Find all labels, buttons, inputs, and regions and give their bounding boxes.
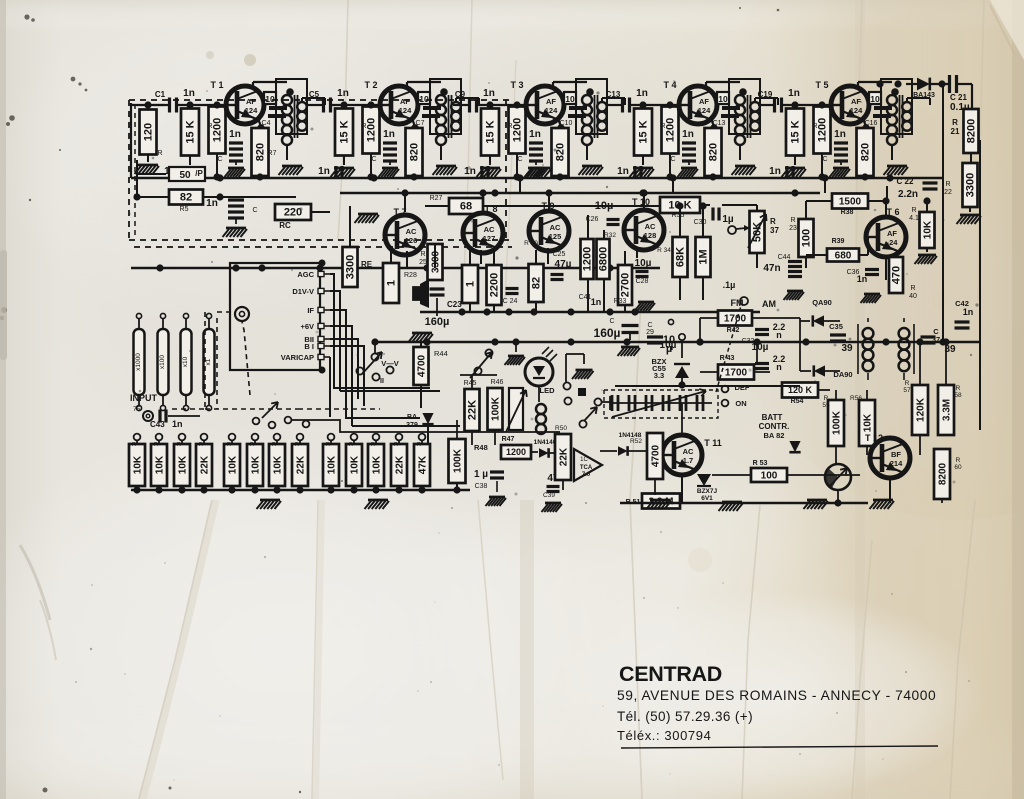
svg-text:57: 57 [903,387,911,394]
svg-text:1700: 1700 [724,313,747,324]
svg-text:T 2: T 2 [364,80,377,90]
svg-text:39: 39 [841,343,853,354]
svg-text:47µ: 47µ [555,259,572,270]
svg-text:C: C [822,156,827,163]
svg-text:R: R [911,207,916,214]
svg-text:120: 120 [143,123,155,141]
svg-text:15 K: 15 K [185,120,197,143]
svg-text:R27: R27 [430,195,443,202]
svg-text:1n: 1n [834,129,846,140]
svg-text:.1µ: .1µ [723,280,736,290]
svg-text:15 K: 15 K [485,120,497,143]
svg-text:124: 124 [245,106,258,115]
svg-text:4.1: 4.1 [909,215,919,222]
svg-text:15 K: 15 K [790,120,802,143]
svg-text:59, AVENUE DES ROMAINS - ANNEC: 59, AVENUE DES ROMAINS - ANNECY - 74000 [617,688,936,703]
svg-text:22: 22 [944,189,952,196]
svg-text:22K: 22K [394,455,405,474]
svg-text:3300: 3300 [965,173,977,197]
svg-text:Tél. (50) 57.29.36 (+): Tél. (50) 57.29.36 (+) [617,709,753,724]
svg-text:3300: 3300 [345,255,357,279]
svg-text:T 1: T 1 [210,80,223,90]
svg-text:C: C [252,207,257,214]
svg-text:C39: C39 [543,492,555,499]
svg-text:68K: 68K [675,247,687,267]
svg-text:10: 10 [718,94,728,104]
svg-text:37: 37 [770,226,779,235]
svg-text:C: C [647,322,652,329]
svg-text:4700: 4700 [416,354,427,377]
svg-text:R: R [507,123,512,130]
svg-text:15 K: 15 K [638,120,650,143]
svg-text:82: 82 [531,277,543,289]
svg-text:R: R [361,123,366,130]
svg-text:160µ: 160µ [594,326,621,340]
svg-text:CONTR.: CONTR. [759,422,790,431]
svg-text:100: 100 [761,470,778,481]
svg-text:R: R [905,380,910,387]
svg-text:10K: 10K [371,455,382,474]
svg-text:124: 124 [698,106,711,115]
svg-text:C35: C35 [829,322,843,331]
svg-text:25: 25 [419,259,427,266]
svg-text:R: R [824,395,829,402]
svg-text:160µ: 160µ [425,316,450,328]
svg-text:x10: x10 [182,356,189,367]
svg-text:C38: C38 [475,483,488,490]
svg-text:C7: C7 [416,120,425,127]
svg-text:1: 1 [465,281,477,287]
svg-text:22K: 22K [199,455,210,474]
svg-text:R5: R5 [180,206,189,213]
svg-text:58: 58 [954,392,962,399]
svg-text:50: 50 [179,170,191,181]
svg-text:10µ: 10µ [752,342,769,353]
svg-text:C25: C25 [553,251,566,258]
svg-text:820: 820 [255,143,267,161]
svg-text:AC: AC [484,225,495,234]
svg-text:1: 1 [386,280,398,286]
svg-text:22K: 22K [467,400,479,420]
svg-text:C13: C13 [713,120,726,127]
svg-text:680: 680 [835,250,852,261]
svg-text:BA 82: BA 82 [764,431,785,440]
svg-text:QA90: QA90 [812,298,832,307]
svg-text:10µ: 10µ [635,258,652,269]
svg-text:IF: IF [307,306,314,315]
svg-text:R: R [326,442,330,448]
svg-text:T 3: T 3 [510,80,523,90]
svg-text:1200: 1200 [582,247,594,271]
svg-text:3.3M: 3.3M [941,399,952,421]
svg-text:n: n [776,330,782,340]
svg-text:1700: 1700 [725,367,748,378]
svg-text:1n: 1n [636,88,648,99]
svg-text:-24: -24 [887,238,899,247]
svg-text:820: 820 [555,143,567,161]
svg-text:10K: 10K [250,455,261,474]
svg-text:60: 60 [954,464,962,471]
svg-text:C5: C5 [309,90,320,99]
svg-text:DEF: DEF [735,383,750,392]
svg-text:C: C [371,156,376,163]
svg-text:379: 379 [406,422,418,429]
svg-text:1n: 1n [483,88,495,99]
svg-text:29: 29 [646,329,654,336]
svg-text:R: R [945,181,950,188]
svg-text:10K: 10K [272,455,283,474]
svg-text:23: 23 [789,225,797,232]
svg-text:1n: 1n [591,297,602,307]
svg-text:1 µ: 1 µ [474,469,488,480]
svg-text:22K: 22K [558,447,569,466]
svg-text:AF: AF [246,97,256,106]
svg-text:RC: RC [279,221,291,230]
svg-text:1M: 1M [698,249,710,264]
svg-text:R: R [790,217,795,224]
svg-text:10K: 10K [154,455,165,474]
svg-text:55: 55 [822,402,830,409]
svg-text:B I: B I [304,342,314,351]
svg-text:R 53: R 53 [753,460,768,467]
svg-text:82: 82 [180,192,192,204]
svg-text:R: R [199,442,203,448]
svg-text:R: R [349,442,353,448]
svg-text:2700: 2700 [620,273,632,297]
svg-text:C13: C13 [606,90,621,99]
svg-text:470: 470 [891,266,903,284]
svg-text:C4: C4 [262,120,271,127]
svg-text:8200: 8200 [937,462,948,485]
svg-text:T 11: T 11 [704,438,722,448]
svg-text:Téléx.: 300794: Téléx.: 300794 [617,728,711,743]
svg-text:R: R [132,442,136,448]
svg-text:10K: 10K [349,455,360,474]
svg-text:820: 820 [860,143,872,161]
svg-text:R: R [417,442,421,448]
svg-text:x100: x100 [159,355,166,369]
svg-text:1200: 1200 [665,118,677,142]
svg-text:x1000: x1000 [135,353,142,371]
svg-text:R46: R46 [491,379,504,386]
svg-text:R45: R45 [464,380,477,387]
svg-text:R52: R52 [630,438,642,445]
svg-text:C: C [609,318,614,325]
svg-text:10K: 10K [922,220,933,239]
svg-text:22K: 22K [295,455,306,474]
svg-text:10K: 10K [326,455,337,474]
svg-text:R39: R39 [832,238,845,245]
svg-text:R50: R50 [555,425,567,432]
svg-text:BA143: BA143 [913,92,935,99]
svg-text:75: 75 [133,406,141,413]
svg-text:1200: 1200 [366,118,378,142]
svg-text:10K: 10K [227,455,238,474]
svg-text:1n: 1n [206,198,218,209]
svg-text:R47: R47 [502,436,515,443]
svg-text:2.2n: 2.2n [898,189,918,200]
svg-text:1500: 1500 [839,196,862,207]
svg-text:220: 220 [284,207,302,219]
svg-text:D1V-V: D1V-V [292,287,314,296]
svg-text:10µ: 10µ [660,340,677,351]
svg-text:T 6: T 6 [886,207,899,217]
svg-text:1n: 1n [183,88,195,99]
svg-text:R: R [177,442,181,448]
svg-text:BF: BF [891,450,901,459]
svg-text:C10: C10 [560,120,573,127]
svg-text:LED: LED [540,386,556,395]
svg-text:1n: 1n [318,166,330,177]
svg-text:R: R [371,442,375,448]
svg-text:R42: R42 [727,327,740,334]
svg-text:1n: 1n [229,129,241,140]
svg-text:R: R [207,123,212,130]
svg-text:10: 10 [565,94,575,104]
svg-text:1200: 1200 [506,447,526,457]
svg-text:1200: 1200 [512,118,524,142]
svg-text:C41: C41 [579,294,592,301]
svg-text:/P: /P [195,169,203,178]
svg-text:1n: 1n [337,88,349,99]
svg-text:T 12: T 12 [865,433,883,443]
svg-text:R33: R33 [614,298,627,305]
svg-text:R48: R48 [474,443,488,452]
svg-text:127: 127 [483,234,496,243]
svg-text:II: II [380,378,384,385]
svg-text:R: R [812,123,817,130]
svg-text:BA: BA [407,414,417,421]
svg-text:68: 68 [460,201,472,213]
svg-text:1n: 1n [529,129,541,140]
svg-text:C 21: C 21 [950,93,967,102]
svg-text:BATT: BATT [762,413,783,422]
svg-text:R: R [154,442,158,448]
svg-text:1n: 1n [788,88,800,99]
svg-text:C23: C23 [447,300,462,309]
svg-text:1.7: 1.7 [683,456,693,465]
svg-text:R: R [952,118,958,127]
svg-text:INPUT: INPUT [130,393,158,403]
svg-text:124: 124 [399,106,412,115]
svg-text:C28: C28 [636,278,649,285]
svg-text:C19: C19 [758,90,773,99]
svg-text:C9: C9 [455,90,466,99]
svg-text:C: C [217,156,222,163]
svg-text:AF: AF [851,97,861,106]
svg-text:6V1: 6V1 [701,495,713,502]
svg-text:1n: 1n [172,419,183,429]
svg-text:C30: C30 [694,219,707,226]
svg-text:R: R [295,442,299,448]
svg-text:10: 10 [265,94,275,104]
svg-text:10K: 10K [177,455,188,474]
svg-text:VARICAP: VARICAP [281,353,314,362]
svg-text:AC: AC [683,447,694,456]
svg-text:RE: RE [361,260,373,269]
svg-text:124: 124 [545,106,558,115]
svg-text:C43: C43 [150,420,165,429]
svg-text:21: 21 [951,127,960,136]
svg-text:6800: 6800 [598,247,610,271]
svg-text:T 5: T 5 [815,80,828,90]
svg-text:R54: R54 [791,398,804,405]
svg-text:R56: R56 [850,395,862,402]
svg-text:100K: 100K [452,448,463,473]
svg-text:10K: 10K [132,455,143,474]
svg-text:AC: AC [406,227,417,236]
svg-text:R: R [956,385,961,392]
svg-text:124: 124 [850,106,863,115]
svg-text:CENTRAD: CENTRAD [619,662,722,686]
svg-text:214: 214 [890,459,903,468]
svg-text:R7: R7 [268,150,277,157]
svg-text:100: 100 [801,229,813,247]
svg-text:820: 820 [409,143,421,161]
svg-text:1µ: 1µ [722,214,734,225]
svg-text:n: n [776,362,782,372]
svg-text:R: R [420,251,425,258]
svg-text:R: R [394,442,398,448]
svg-text:R28: R28 [404,272,417,279]
svg-text:AF: AF [699,97,709,106]
svg-text:AGC: AGC [297,270,314,279]
svg-text:R: R [770,217,776,226]
svg-text:C1: C1 [155,90,166,99]
svg-text:1N4140: 1N4140 [534,439,557,446]
svg-text:1n: 1n [383,129,395,140]
svg-text:126: 126 [405,236,418,245]
svg-text:15 K: 15 K [339,120,351,143]
svg-text:10: 10 [419,94,429,104]
svg-text:125: 125 [549,232,562,241]
svg-text:V—V: V—V [381,359,399,368]
svg-text:C: C [670,156,675,163]
svg-text:47K: 47K [417,455,428,474]
svg-text:R44: R44 [434,349,448,358]
svg-text:AF: AF [887,229,897,238]
svg-text:7.0: 7.0 [582,472,591,478]
svg-text:BZX7J: BZX7J [697,488,718,495]
svg-text:ON: ON [735,399,746,408]
svg-text:C 24: C 24 [503,298,518,305]
svg-text:3.3: 3.3 [654,371,664,380]
svg-text:C 22: C 22 [897,177,914,186]
svg-text:R38: R38 [841,209,854,216]
svg-text:1200: 1200 [212,118,224,142]
svg-text:AC: AC [550,223,561,232]
svg-text:R 34: R 34 [657,247,671,254]
svg-text:+6V: +6V [300,322,314,331]
svg-text:AF: AF [546,97,556,106]
svg-text:C16: C16 [865,120,878,127]
svg-text:1n: 1n [769,166,781,177]
svg-text:100K: 100K [831,410,842,435]
svg-text:4700: 4700 [650,444,661,467]
svg-text:x1: x1 [205,358,212,365]
svg-text:10K: 10K [862,413,873,432]
svg-text:TCA: TCA [580,465,593,471]
svg-text:R35: R35 [672,212,685,219]
svg-text:100K: 100K [490,396,501,421]
svg-text:R: R [157,150,162,157]
svg-text:1n: 1n [682,129,694,140]
svg-text:120K: 120K [915,397,926,422]
svg-text:1n: 1n [963,307,974,317]
svg-text:R: R [227,442,231,448]
svg-text:40: 40 [909,293,917,300]
svg-text:R: R [956,457,961,464]
svg-text:820: 820 [708,143,720,161]
svg-text:R: R [250,442,254,448]
svg-text:128: 128 [644,231,657,240]
svg-text:1200: 1200 [817,118,829,142]
svg-text:AF: AF [400,97,410,106]
svg-text:AM: AM [762,299,776,309]
svg-text:8200: 8200 [966,119,978,143]
svg-text:R: R [910,285,915,292]
svg-text:10: 10 [870,94,880,104]
svg-text:47n: 47n [763,263,780,274]
svg-text:R: R [660,123,665,130]
svg-text:C: C [517,156,522,163]
svg-text:1C: 1C [580,457,588,463]
svg-text:1n: 1n [617,166,629,177]
svg-text:R: R [272,442,276,448]
svg-text:AC: AC [645,222,656,231]
svg-text:2200: 2200 [489,273,501,297]
